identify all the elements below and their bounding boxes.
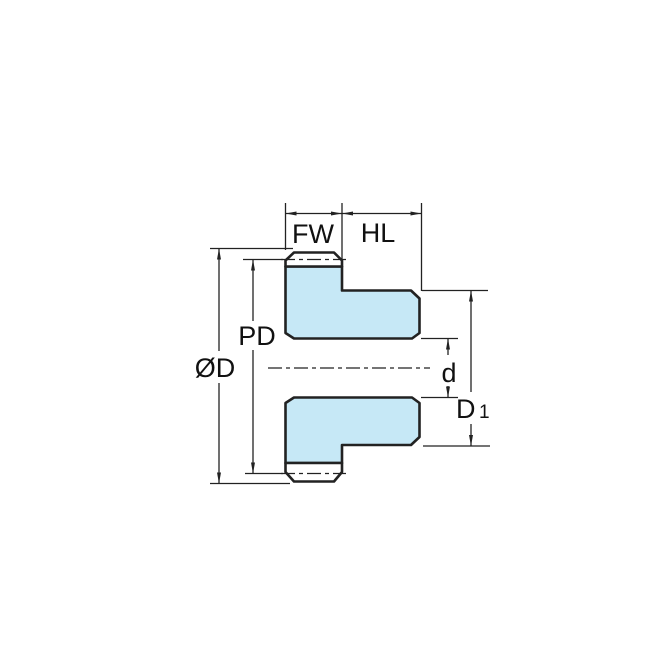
diagram-root: FW HL PD ØD d D 1 (195, 203, 490, 484)
face-width-label: FW (292, 219, 334, 249)
pitch-diameter-label: PD (238, 321, 276, 351)
gear-tooth-bottom (286, 463, 343, 482)
drawing-canvas: FW HL PD ØD d D 1 (0, 0, 670, 670)
hub-diameter-subscript: 1 (479, 402, 490, 423)
outside-diameter-label: ØD (195, 353, 236, 383)
gear-body-lower (286, 398, 420, 464)
bore-diameter-label: d (441, 358, 456, 388)
hub-length-label: HL (361, 218, 396, 248)
gear-dimension-diagram: FW HL PD ØD d D 1 (0, 0, 670, 670)
gear-body-upper (286, 267, 420, 339)
hub-diameter-label: D (456, 394, 476, 424)
